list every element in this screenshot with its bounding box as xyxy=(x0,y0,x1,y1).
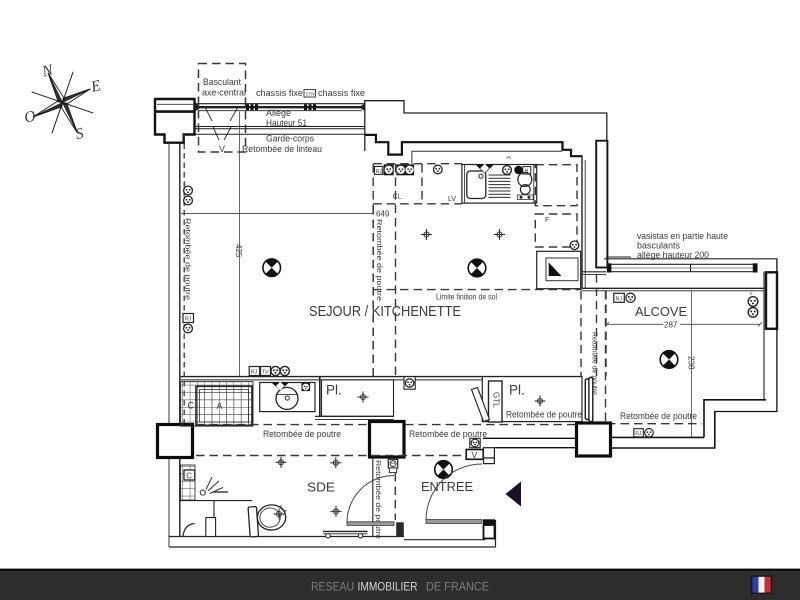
svg-text:287: 287 xyxy=(664,320,678,329)
svg-text:Garde-corps: Garde-corps xyxy=(266,134,314,144)
svg-text:RJ: RJ xyxy=(185,317,192,323)
svg-text:vasistas en partie haute: vasistas en partie haute xyxy=(637,231,728,241)
svg-text:chassis fixe: chassis fixe xyxy=(318,88,365,98)
svg-text:F: F xyxy=(545,217,549,224)
svg-text:V: V xyxy=(219,144,225,154)
svg-text:A: A xyxy=(217,401,223,411)
svg-text:Retombée de poutre: Retombée de poutre xyxy=(375,219,384,301)
svg-text:DE FRANCE: DE FRANCE xyxy=(426,580,489,594)
svg-text:axe-central: axe-central xyxy=(202,88,246,98)
svg-text:C: C xyxy=(188,401,195,411)
svg-text:RESEAU: RESEAU xyxy=(311,580,354,594)
svg-text:LV: LV xyxy=(448,196,456,203)
svg-text:STN: STN xyxy=(306,92,315,97)
svg-text:RJ: RJ xyxy=(635,431,642,437)
svg-text:RJ: RJ xyxy=(376,169,383,175)
svg-text:Basculant: Basculant xyxy=(203,77,241,87)
svg-text:Retombée de linteau: Retombée de linteau xyxy=(242,144,322,154)
svg-text:Retombée de poutre: Retombée de poutre xyxy=(374,460,383,539)
svg-text:RJ: RJ xyxy=(616,296,623,302)
svg-text:Limite finition de sol: Limite finition de sol xyxy=(436,293,497,302)
svg-text:RJ: RJ xyxy=(251,370,258,376)
svg-text:allège hauteur 200: allège hauteur 200 xyxy=(637,250,709,260)
svg-text:basculants: basculants xyxy=(637,241,681,251)
svg-text:IMMOBILIER: IMMOBILIER xyxy=(358,580,418,594)
svg-text:GTL: GTL xyxy=(492,392,501,408)
svg-text:SEJOUR / KITCHENETTE: SEJOUR / KITCHENETTE xyxy=(309,304,461,320)
svg-text:CL: CL xyxy=(393,194,402,201)
svg-text:Retombée de poutre: Retombée de poutre xyxy=(184,218,193,300)
svg-text:TV: TV xyxy=(262,370,269,376)
svg-text:425: 425 xyxy=(234,244,243,258)
svg-text:SDE: SDE xyxy=(307,480,335,495)
svg-text:V: V xyxy=(472,450,478,460)
svg-text:Allège: Allège xyxy=(266,108,291,118)
svg-text:Pl.: Pl. xyxy=(509,383,525,398)
svg-text:chassis fixe: chassis fixe xyxy=(256,88,303,98)
svg-text:C: C xyxy=(186,472,192,481)
svg-text:Retombée de poutre: Retombée de poutre xyxy=(506,410,582,420)
svg-text:ENTREE: ENTREE xyxy=(421,479,473,494)
svg-text:Retombée de poutre: Retombée de poutre xyxy=(409,429,487,439)
svg-text:Retombée de poutre: Retombée de poutre xyxy=(620,411,697,421)
svg-text:238: 238 xyxy=(687,356,696,370)
svg-text:Retombée de poutre: Retombée de poutre xyxy=(263,429,341,439)
svg-text:649: 649 xyxy=(376,210,390,219)
svg-text:Pl.: Pl. xyxy=(326,383,342,398)
svg-text:ALCOVE: ALCOVE xyxy=(635,304,687,319)
